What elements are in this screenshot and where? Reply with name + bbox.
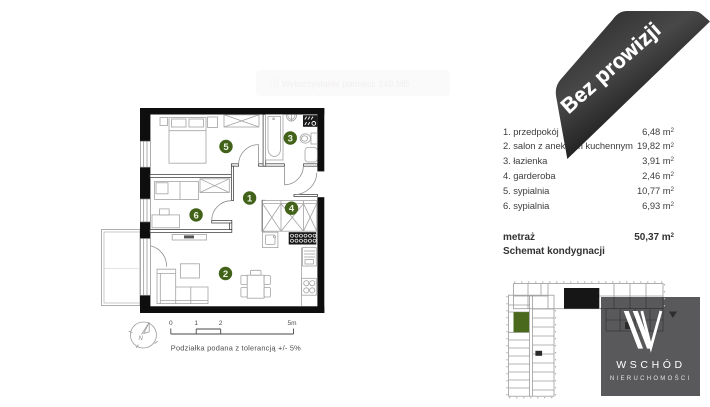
svg-text:4: 4 <box>289 204 295 215</box>
svg-text:2: 2 <box>223 269 228 280</box>
svg-text:1: 1 <box>247 193 253 204</box>
svg-text:2: 2 <box>219 320 223 327</box>
svg-text:3: 3 <box>288 133 293 144</box>
svg-text:6: 6 <box>193 210 198 221</box>
svg-text:Podziałka podana z tolerancją: Podziałka podana z tolerancją +/- 5% <box>171 344 301 353</box>
svg-text:1: 1 <box>194 320 198 327</box>
svg-text:WSCHÓD: WSCHÓD <box>616 358 685 371</box>
svg-text:5: 5 <box>223 142 229 153</box>
svg-text:N: N <box>139 336 144 342</box>
svg-text:5m: 5m <box>287 320 296 327</box>
svg-text:0: 0 <box>169 320 173 327</box>
svg-text:NIERUCHOMOŚCI: NIERUCHOMOŚCI <box>610 374 692 382</box>
